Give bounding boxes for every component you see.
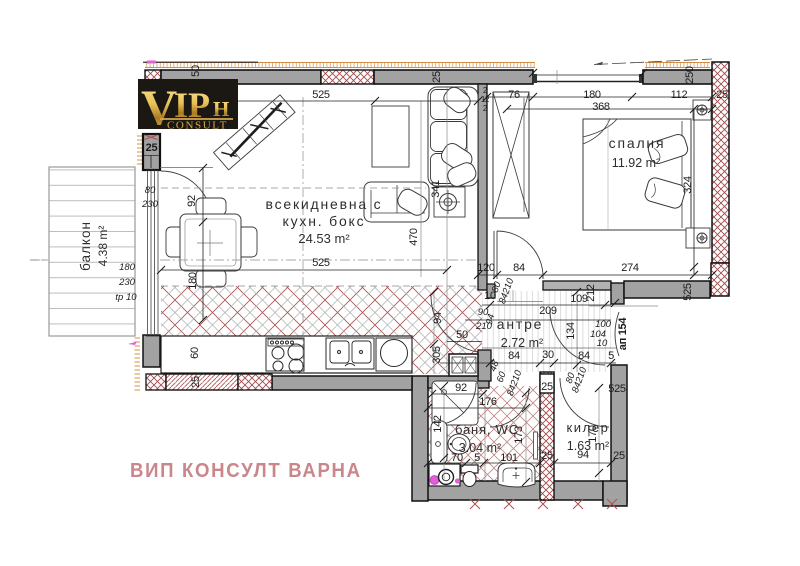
svg-text:ВИП КОНСУЛТ ВАРНА: ВИП КОНСУЛТ ВАРНА <box>130 460 362 482</box>
svg-text:324: 324 <box>682 176 694 194</box>
svg-text:25: 25 <box>431 71 443 83</box>
svg-text:142: 142 <box>432 415 444 433</box>
svg-text:4.38 m²: 4.38 m² <box>96 226 110 267</box>
svg-text:134: 134 <box>565 322 577 340</box>
svg-text:180: 180 <box>187 272 199 290</box>
svg-text:CONSULT: CONSULT <box>167 120 228 132</box>
svg-text:70: 70 <box>451 452 463 464</box>
svg-text:84: 84 <box>508 350 520 362</box>
svg-text:tp 10: tp 10 <box>115 292 137 303</box>
svg-text:12: 12 <box>481 95 490 104</box>
svg-text:525: 525 <box>682 283 694 301</box>
svg-text:10: 10 <box>597 338 608 349</box>
svg-text:50: 50 <box>456 329 468 341</box>
svg-text:212: 212 <box>585 284 597 302</box>
svg-text:50: 50 <box>190 65 202 77</box>
svg-text:H: H <box>213 97 229 121</box>
svg-text:25: 25 <box>190 376 202 388</box>
svg-text:60: 60 <box>189 347 201 359</box>
svg-text:94: 94 <box>577 449 589 461</box>
svg-text:209: 209 <box>539 305 557 317</box>
svg-text:всекидневна с: всекидневна с <box>266 196 383 212</box>
svg-text:250: 250 <box>684 66 696 84</box>
svg-text:274: 274 <box>621 262 639 274</box>
svg-text:230: 230 <box>141 199 159 210</box>
svg-text:5: 5 <box>474 452 480 464</box>
svg-text:3.04 m²: 3.04 m² <box>459 441 501 455</box>
svg-text:92: 92 <box>186 195 198 207</box>
svg-text:80: 80 <box>145 185 156 196</box>
svg-text:525: 525 <box>312 89 330 101</box>
svg-text:341: 341 <box>430 180 442 198</box>
svg-text:баня, WC: баня, WC <box>455 422 519 437</box>
svg-text:230: 230 <box>118 277 136 288</box>
svg-text:84: 84 <box>578 350 590 362</box>
svg-text:525: 525 <box>312 257 330 269</box>
svg-text:305: 305 <box>431 346 443 364</box>
svg-text:76: 76 <box>508 89 520 101</box>
svg-text:30: 30 <box>542 349 554 361</box>
svg-text:ап 154: ап 154 <box>617 317 629 351</box>
svg-text:101: 101 <box>500 452 518 464</box>
svg-text:94: 94 <box>432 312 444 324</box>
svg-text:170: 170 <box>587 425 599 443</box>
svg-text:525: 525 <box>608 383 626 395</box>
svg-text:112: 112 <box>671 89 688 101</box>
svg-text:92: 92 <box>455 382 467 394</box>
svg-text:368: 368 <box>592 101 610 113</box>
svg-text:84: 84 <box>513 262 525 274</box>
svg-text:антре: антре <box>497 316 544 332</box>
svg-text:176: 176 <box>479 396 497 408</box>
svg-text:5: 5 <box>608 350 614 362</box>
svg-text:25: 25 <box>541 381 553 393</box>
svg-text:25: 25 <box>613 450 625 462</box>
svg-text:спалня: спалня <box>609 135 666 151</box>
svg-text:25: 25 <box>146 142 158 154</box>
svg-text:балкон: балкон <box>78 221 93 271</box>
svg-text:25: 25 <box>541 450 553 462</box>
svg-text:173: 173 <box>513 426 525 444</box>
svg-text:120: 120 <box>477 262 495 274</box>
svg-text:кухн. бокс: кухн. бокс <box>283 213 366 229</box>
svg-text:25: 25 <box>716 89 728 101</box>
svg-text:2.72 m²: 2.72 m² <box>501 336 543 350</box>
svg-text:24.53 m²: 24.53 m² <box>298 231 350 246</box>
svg-text:11.92 m²: 11.92 m² <box>612 156 660 170</box>
svg-text:180: 180 <box>583 89 601 101</box>
svg-text:180: 180 <box>119 262 136 273</box>
svg-text:470: 470 <box>408 228 420 246</box>
